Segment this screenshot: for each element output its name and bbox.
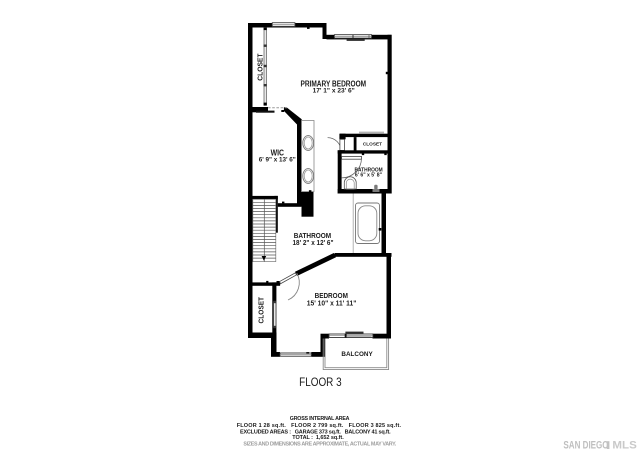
svg-text:SIZES AND DIMENSIONS ARE APPRO: SIZES AND DIMENSIONS ARE APPROXIMATE, AC… <box>243 442 396 448</box>
svg-text:BALCONY: BALCONY <box>341 351 373 358</box>
svg-text:18' 2" x 12' 6": 18' 2" x 12' 6" <box>293 238 334 247</box>
svg-text:CLOSET: CLOSET <box>257 297 266 324</box>
svg-text:GROSS INTERNAL AREA: GROSS INTERNAL AREA <box>290 416 350 422</box>
svg-text:6' 6" x 5' 8": 6' 6" x 5' 8" <box>355 172 382 178</box>
svg-text:17' 1" x 23' 6": 17' 1" x 23' 6" <box>313 88 355 95</box>
svg-text:CLOSET: CLOSET <box>363 142 382 148</box>
svg-text:CLOSET: CLOSET <box>256 53 265 81</box>
svg-text:MLS: MLS <box>612 440 636 451</box>
svg-text:FLOOR 1 28 sq.ft. FLOOR 2 79: FLOOR 1 28 sq.ft. FLOOR 2 799 sq.ft. FLO… <box>237 423 402 429</box>
svg-text:SAN DIEGO: SAN DIEGO <box>563 438 608 450</box>
svg-text:6' 9" x 13' 6": 6' 9" x 13' 6" <box>259 157 296 164</box>
svg-text:TOTAL : 1,652 sq.ft.: TOTAL : 1,652 sq.ft. <box>292 435 344 441</box>
svg-text:15' 10" x 11' 11": 15' 10" x 11' 11" <box>307 299 357 308</box>
svg-text:FLOOR 3: FLOOR 3 <box>299 375 342 389</box>
